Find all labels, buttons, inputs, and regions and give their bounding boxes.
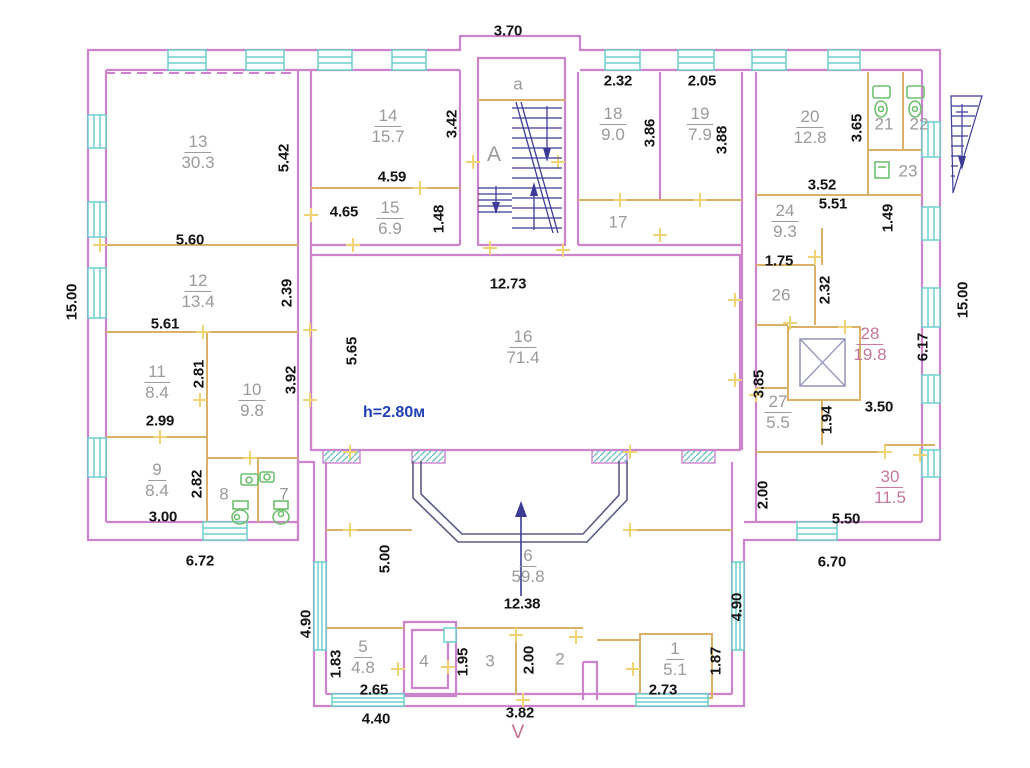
room-label-20: 2012.8 (793, 107, 826, 147)
dim-r16-width: 12.73 (490, 276, 527, 293)
dim-r27-height: 3.85 (751, 370, 768, 398)
dim-r14-height: 3.42 (444, 110, 461, 138)
dim-r28-width: 3.50 (865, 399, 893, 416)
dim-r15-width: 4.65 (330, 204, 358, 221)
room-label-18: 189.0 (600, 104, 627, 144)
section-marker: V (512, 722, 525, 744)
dim-r5-width: 2.65 (360, 682, 388, 699)
dim-r20-width: 3.52 (808, 177, 836, 194)
dim-r12-width: 5.61 (151, 316, 179, 333)
room-label-8: 8 (215, 484, 232, 503)
room-label-21: 21 (871, 114, 898, 133)
dim-r14-width: 4.59 (378, 169, 406, 186)
dim-r12-height: 2.39 (279, 279, 296, 307)
room-label-26: 26 (768, 285, 795, 304)
room-label-12: 1213.4 (181, 271, 214, 311)
room-area: 30.3 (181, 153, 214, 172)
dim-r13-width: 5.60 (176, 232, 204, 249)
dim-bump-width: 3.70 (494, 23, 522, 40)
dim-left-wing-height: 15.00 (64, 284, 81, 321)
room-label-17: 17 (605, 212, 632, 231)
dim-bottom-center: 3.82 (506, 705, 534, 722)
dim-r30-left: 2.00 (755, 481, 772, 509)
hatched-piers (323, 450, 715, 463)
external-stair-icon (951, 96, 982, 193)
room-label-5: 54.8 (351, 637, 375, 677)
dim-r13-height: 5.42 (276, 144, 293, 172)
dim-r19-width: 2.05 (688, 73, 716, 90)
dim-r1-width: 2.73 (649, 682, 677, 699)
dim-r18-width: 2.32 (604, 73, 632, 90)
room-label-1: 15.1 (663, 639, 687, 679)
dim-r28-height: 6.17 (915, 333, 932, 361)
dim-r19-height: 3.88 (714, 126, 731, 154)
dim-r30-width: 5.50 (832, 511, 860, 528)
dim-r11-width: 2.99 (146, 413, 174, 430)
stairwell-main-label: A (483, 143, 505, 167)
dim-right-wing-width: 6.70 (818, 554, 846, 571)
door-ticks (93, 155, 927, 707)
dim-lower-right-height: 4.90 (729, 593, 746, 621)
dim-r11-height: 2.81 (191, 360, 208, 388)
room-label-11: 118.4 (144, 362, 170, 402)
room-label-16: 1671.4 (506, 327, 539, 367)
dim-r24-width: 5.51 (819, 196, 847, 213)
dim-r3-height: 1.95 (455, 648, 472, 676)
room-label-22: 22 (906, 114, 933, 133)
room-label-13: 1330.3 (181, 132, 214, 172)
stairwell-upper-label: a (509, 74, 526, 93)
staircase-icon (478, 102, 562, 233)
dim-r6-width: 12.38 (504, 596, 541, 613)
room-label-10: 109.8 (239, 380, 266, 420)
room-label-3: 3 (481, 651, 498, 670)
dim-left-wing-width: 6.72 (186, 553, 214, 570)
dim-r10-height: 3.92 (283, 366, 300, 394)
dim-r9-height: 2.82 (189, 470, 206, 498)
room-label-4: 4 (415, 651, 432, 670)
dim-r9-width: 3.00 (149, 509, 177, 526)
room-label-14: 1415.7 (371, 106, 404, 146)
floor-plan: 1330.3 1415.7 156.9 1213.4 118.4 109.8 9… (0, 0, 1030, 768)
room-label-27: 275.5 (765, 392, 792, 432)
room-label-15: 156.9 (377, 198, 404, 238)
dim-r1-height: 1.87 (708, 647, 725, 675)
dim-r15-height: 1.48 (431, 205, 448, 233)
dim-r26-height: 2.32 (817, 276, 834, 304)
dim-r24-sub: 1.49 (880, 204, 897, 232)
dim-right-wing-height: 15.00 (955, 282, 972, 319)
room-label-2: 2 (551, 649, 568, 668)
room-label-28: 2819.8 (853, 324, 886, 364)
room-label-19: 197.9 (687, 104, 714, 144)
dim-r16-height: 5.65 (344, 337, 361, 365)
dim-r2-height: 2.00 (521, 646, 538, 674)
dim-r26-width: 1.75 (765, 253, 793, 270)
dim-r5-height: 1.83 (328, 650, 345, 678)
dim-r5-outer: 4.40 (362, 711, 390, 728)
room-label-9: 98.4 (145, 460, 169, 500)
room-label-23: 23 (895, 161, 922, 180)
dim-r18-height: 3.86 (642, 119, 659, 147)
room-label-6: 659.8 (511, 546, 544, 586)
elevator-icon (800, 339, 845, 386)
dim-r27-sub: 1.94 (819, 406, 836, 434)
porch-outline (413, 461, 627, 542)
dim-r6-height: 5.00 (377, 545, 394, 573)
dim-lower-left-height: 4.90 (298, 610, 315, 638)
room-label-7: 7 (275, 484, 292, 503)
dim-r20-height: 3.65 (849, 114, 866, 142)
room-label-30: 3011.5 (874, 467, 906, 507)
ceiling-height-note: h=2.80м (363, 404, 425, 422)
room-label-24: 249.3 (772, 201, 799, 241)
